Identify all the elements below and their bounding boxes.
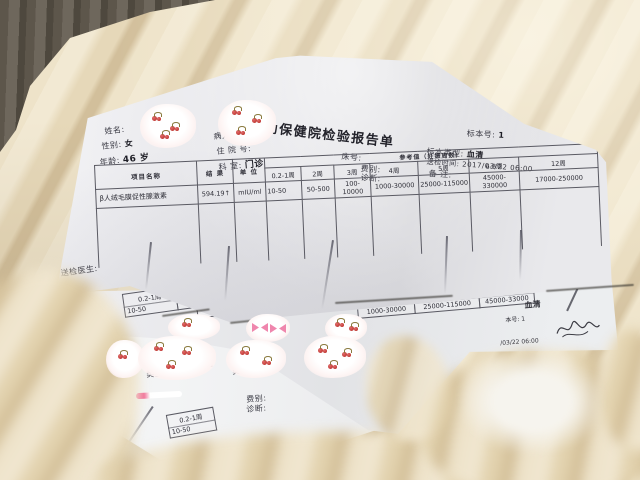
sample-no-value: 1 [498, 131, 505, 140]
send-time-text: /03/22 06:00 [500, 337, 539, 347]
cherry-sticker-icon [304, 336, 366, 378]
mid-overlap-sample-type: 血清 [524, 299, 541, 311]
report-title: 幼保健院检验报告单 [264, 117, 396, 151]
cherry-icon [232, 110, 237, 115]
cherry-icon [349, 326, 354, 331]
cherry-icon [118, 354, 123, 359]
cherry-icon [342, 352, 347, 357]
cherry-icon [240, 350, 245, 355]
sex-label: 性别: [101, 140, 122, 151]
report-title-text: 幼保健院检验报告单 [264, 121, 395, 151]
photo-scene: 类型: 幼保健 类型: 病人类型: 单 费别: 诊断: 0.2-1周 10-50… [0, 0, 640, 480]
cherry-icon [252, 118, 257, 123]
cherry-icon [182, 322, 187, 327]
pink-bow-icon [252, 323, 268, 332]
sample-type-text: 血清 [524, 300, 541, 310]
ref-value: 10-50 [265, 180, 302, 201]
results-table: 项目名称 结 果 单 位 参考值（妊娠周数） 0.2-1周 2周 3周 4周 5… [94, 143, 602, 268]
column-crease-line [519, 230, 521, 280]
sample-no-label: 标本号: [466, 129, 495, 139]
ref-value: 25000-115000 [418, 173, 470, 194]
cherry-icon [182, 350, 187, 355]
cherry-icon [154, 346, 159, 351]
cherry-sticker-icon [140, 104, 196, 148]
cherry-sticker-icon [246, 314, 290, 342]
cherry-icon [160, 134, 165, 139]
sex-value: 女 [124, 139, 133, 149]
ref-value: 1000-30000 [370, 175, 419, 196]
cherry-icon [170, 126, 175, 131]
name-label: 姓名: [104, 125, 125, 136]
correction-streak [136, 391, 182, 399]
cherry-icon [166, 364, 171, 369]
name-field: 姓名: [104, 124, 125, 137]
test-unit: mIU/ml [233, 182, 266, 202]
handwritten-signature-scribble [552, 309, 603, 344]
cherry-sticker-icon [226, 340, 286, 378]
sex-field: 性别: 女 [101, 138, 134, 152]
result-column-header: 结 果 [196, 159, 233, 185]
pink-bow-icon [270, 324, 286, 333]
white-fleece-patch [462, 352, 602, 452]
cherry-icon [318, 348, 323, 353]
test-result-value: 594.19↑ [197, 183, 234, 204]
ref-value: 45000-330000 [469, 171, 520, 192]
mid-corner-time: /03/22 06:00 [500, 337, 539, 347]
sample-no-text: 本号: 1 [505, 316, 525, 324]
cherry-icon [335, 322, 340, 327]
mid-corner-sample-no: 本号: 1 [505, 314, 525, 324]
cherry-icon [152, 116, 157, 121]
bottom-diagnosis-label: 诊断: [246, 403, 267, 415]
cherry-icon [236, 130, 241, 135]
cherry-icon [262, 360, 267, 365]
cherry-sticker-icon [138, 336, 216, 380]
cherry-sticker-icon [218, 100, 276, 146]
unit-column-header: 单 位 [232, 158, 265, 183]
ref-value: 100-10000 [334, 177, 371, 198]
ref-value: 50-500 [301, 179, 335, 199]
diagnosis-label: 诊断: [246, 404, 267, 414]
bottom-fragment-table: 0.2-1周 10-50 [166, 408, 216, 439]
cherry-icon [328, 364, 333, 369]
ref-col-header: 2周 [301, 165, 335, 180]
sample-no-field: 标本号: 1 [466, 128, 504, 141]
